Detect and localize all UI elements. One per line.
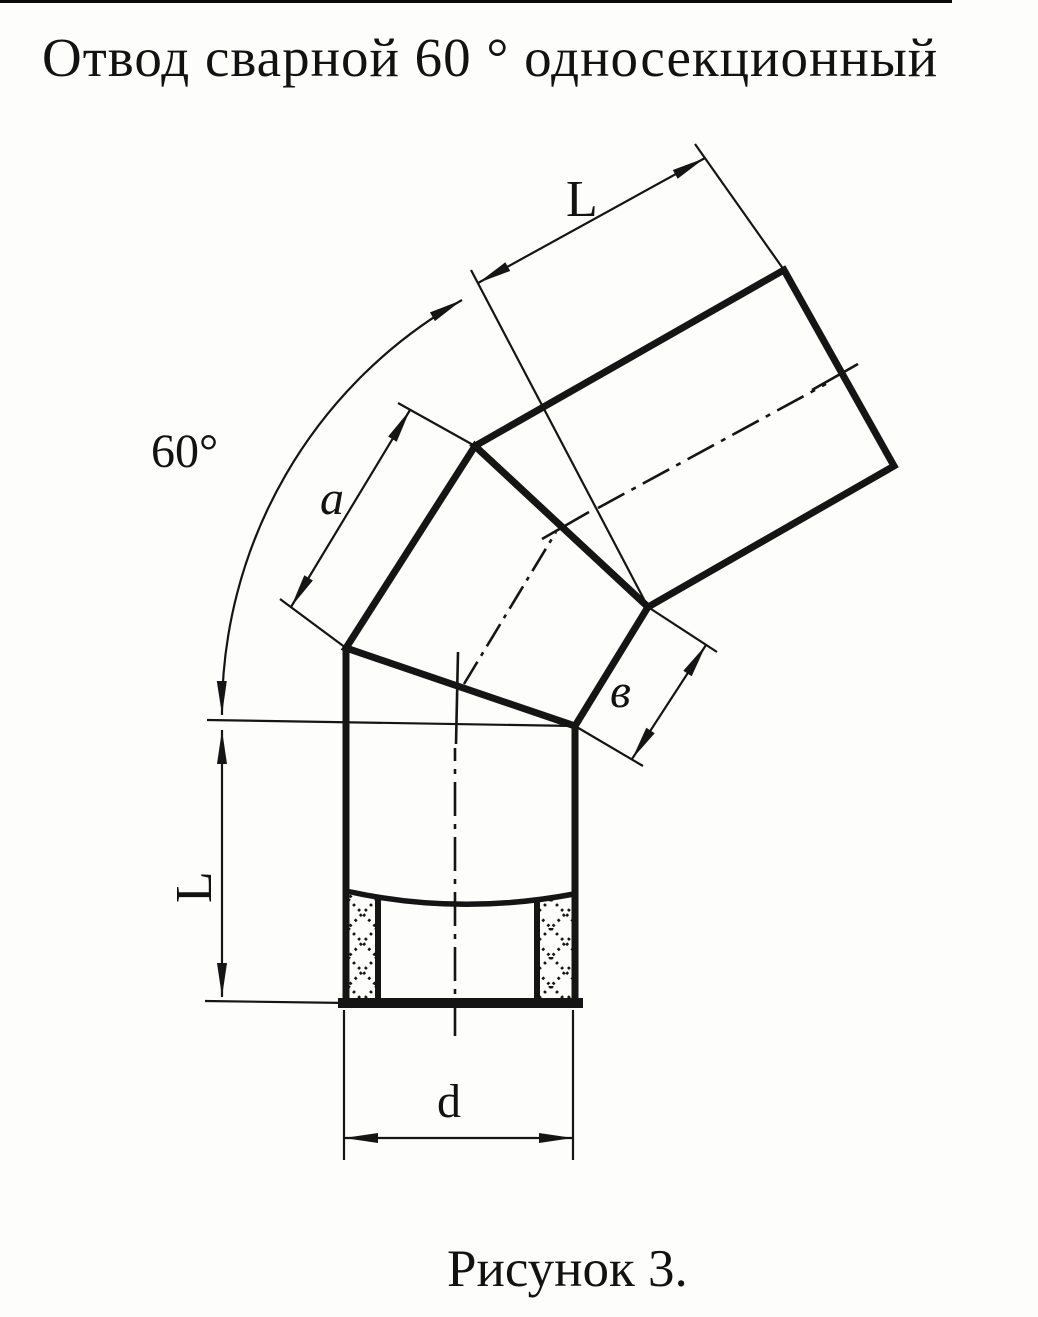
section-a-extension-upper: [398, 403, 475, 446]
left-gasket-hatch: [349, 894, 376, 1001]
right-gasket-hatch: [539, 896, 572, 1001]
socket-detail: [346, 891, 574, 1001]
section-b-extension-lower: [575, 726, 643, 766]
lower-length-reference-bottom: [205, 1001, 348, 1003]
section-b-dimension-line: [632, 645, 706, 759]
dim-label-section-a: a: [320, 472, 344, 525]
vertical-axis-tick: [456, 652, 458, 744]
section-b-extension-upper: [648, 607, 717, 652]
dim-label-section-b: в: [610, 665, 631, 718]
upper-length-extension-right: [695, 144, 784, 270]
pipe-outline: [338, 270, 894, 1003]
upper-pipe-segment: [475, 270, 894, 607]
section-a-extension-lower: [280, 599, 346, 648]
centerlines: [455, 364, 858, 1036]
upper-length-extension-left: [471, 270, 648, 607]
dim-label-diameter: d: [437, 1075, 461, 1128]
technical-drawing: Отвод сварной 60 ° односекционный L 60° …: [0, 0, 1038, 1317]
sleeve-inner-walls: [378, 897, 537, 1001]
middle-axis-centerline: [464, 532, 556, 684]
upper-axis-centerline: [598, 384, 826, 508]
dim-label-upper-length: L: [566, 171, 598, 228]
scanned-drawing-page: Отвод сварной 60 ° односекционный L 60° …: [0, 0, 1038, 1317]
scan-artifact-bar: [0, 0, 952, 3]
figure-caption: Рисунок 3.: [447, 1240, 688, 1298]
lower-length-reference-top: [207, 720, 575, 726]
dim-label-lower-length: L: [166, 871, 223, 903]
dim-label-bend-angle: 60°: [151, 425, 218, 478]
drawing-title: Отвод сварной 60 ° односекционный: [42, 27, 938, 88]
middle-section: [346, 446, 648, 726]
